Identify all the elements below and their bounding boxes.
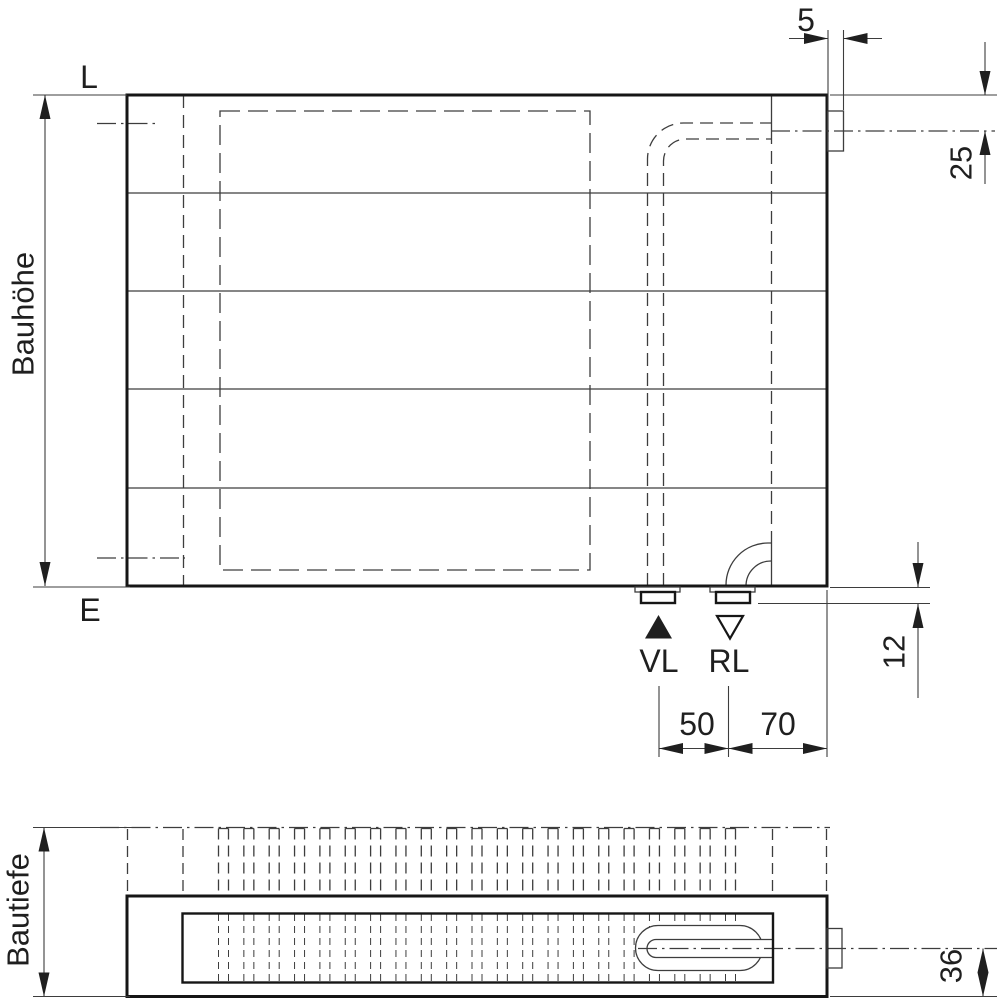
return-direction-icon [717, 616, 743, 639]
depth-label: Bautiefe [1, 853, 36, 967]
dim-bottom-offset-12: 12 [758, 542, 930, 698]
dim-top-offset-25: 25 [830, 42, 997, 184]
dim-height: Bauhöhe [6, 95, 131, 587]
dim-edge-offset-value: 70 [760, 706, 796, 742]
return-elbow [726, 543, 772, 586]
supply-label: VL [639, 643, 678, 679]
convector-fins-top [219, 829, 736, 897]
dim-top-offset-value: 25 [944, 146, 979, 180]
return-label: RL [709, 643, 750, 679]
drain-mark-label: E [79, 592, 100, 628]
front-view: 5 25 VL RL [6, 2, 998, 757]
dim-pipe-center-36: 36 [830, 949, 997, 997]
return-connector [710, 587, 755, 603]
drawing-canvas: 5 25 VL RL [0, 0, 1000, 1000]
dim-pipe-center-value: 36 [934, 949, 969, 983]
inner-panel-dashed [220, 111, 590, 570]
height-label: Bauhöhe [6, 252, 41, 376]
vent-mark-label: L [80, 59, 98, 95]
water-channel-lines [127, 193, 827, 488]
projection-lines [128, 829, 827, 896]
dim-supply-spacing-value: 50 [679, 706, 715, 742]
radiator-technical-drawing: 5 25 VL RL [0, 0, 1000, 1000]
supply-direction-icon [645, 615, 672, 639]
dim-tapping-value: 5 [797, 2, 815, 38]
bottom-connectors [635, 587, 755, 603]
plan-view: 36 Bautiefe [1, 828, 998, 997]
supply-connector [635, 587, 680, 603]
panel-outline [127, 95, 827, 586]
dim-bottom-offset-value: 12 [877, 635, 912, 669]
dim-edge-offset-70: 70 [729, 706, 828, 749]
